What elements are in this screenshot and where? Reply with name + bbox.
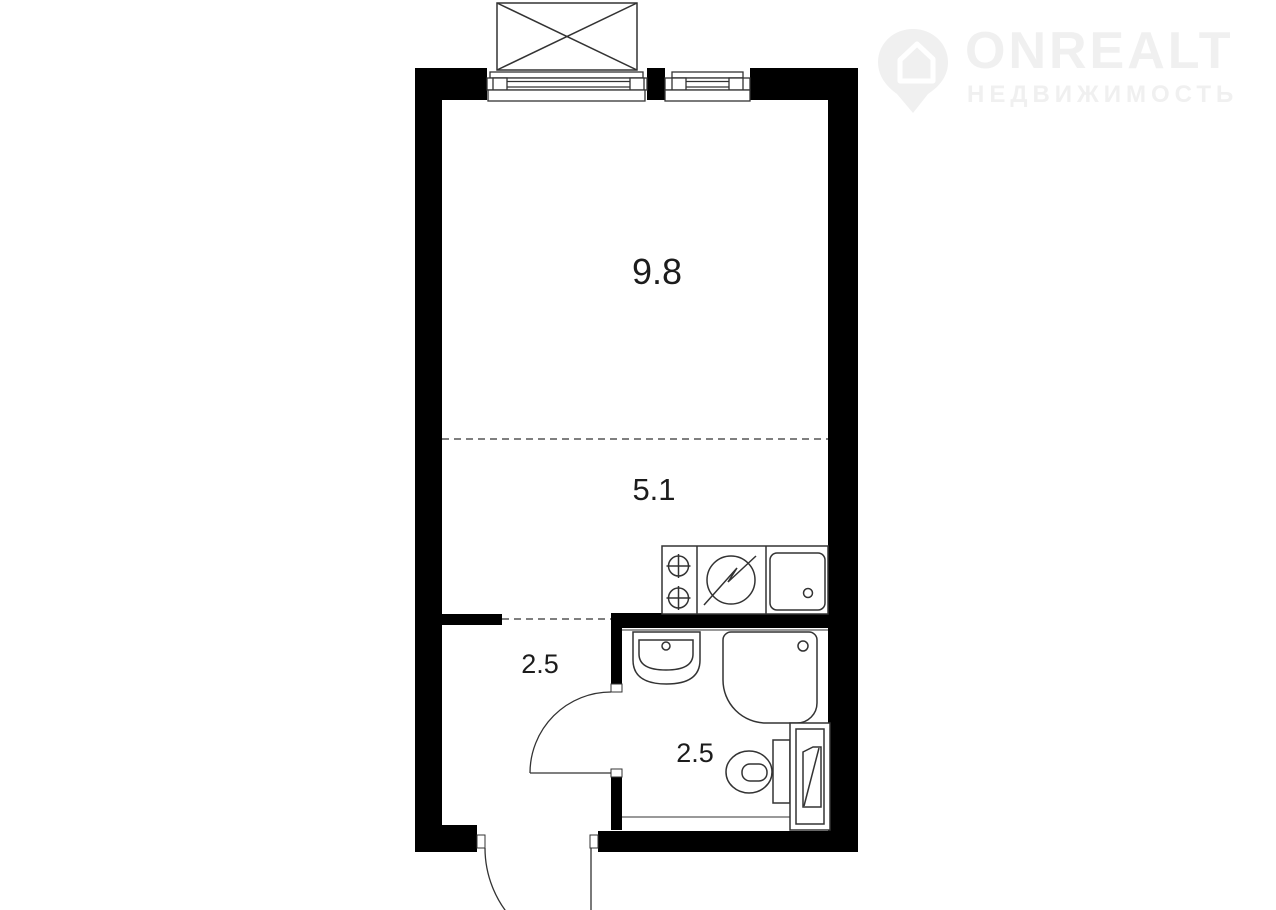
floor-plan-drawing: 9.8 5.1 2.5 2.5 <box>0 0 1276 910</box>
wall <box>828 68 858 852</box>
shower-tray-icon <box>723 632 817 723</box>
wall <box>415 68 442 825</box>
window-icon <box>487 72 647 101</box>
window-icon <box>665 72 750 101</box>
washing-machine-icon <box>790 723 830 830</box>
wall <box>598 831 858 852</box>
bathroom-area-label: 2.5 <box>676 738 714 768</box>
wall <box>611 613 622 684</box>
door-jambs <box>477 684 622 848</box>
hallway-area-label: 2.5 <box>521 649 559 679</box>
wall <box>415 825 477 852</box>
wall <box>611 777 622 830</box>
bathroom-fixtures <box>622 630 830 830</box>
bathroom-door-swing-icon <box>530 692 611 773</box>
living-room-area-label: 9.8 <box>632 251 682 292</box>
wall <box>611 613 828 628</box>
entrance-door-swing-icon <box>485 848 591 910</box>
door-jamb <box>611 769 622 777</box>
balcony-box-icon <box>497 3 637 70</box>
wall <box>440 614 502 625</box>
kitchen-zone-area-label: 5.1 <box>632 472 675 507</box>
washbasin-icon <box>633 632 700 684</box>
kitchen-counter <box>662 546 828 614</box>
door-jamb <box>590 835 598 848</box>
toilet-icon <box>726 740 790 803</box>
floor-plan-page: ONREALT НЕДВИЖИМОСТЬ <box>0 0 1276 910</box>
door-jamb <box>611 684 622 692</box>
door-jamb <box>477 835 485 848</box>
wall <box>647 68 665 100</box>
